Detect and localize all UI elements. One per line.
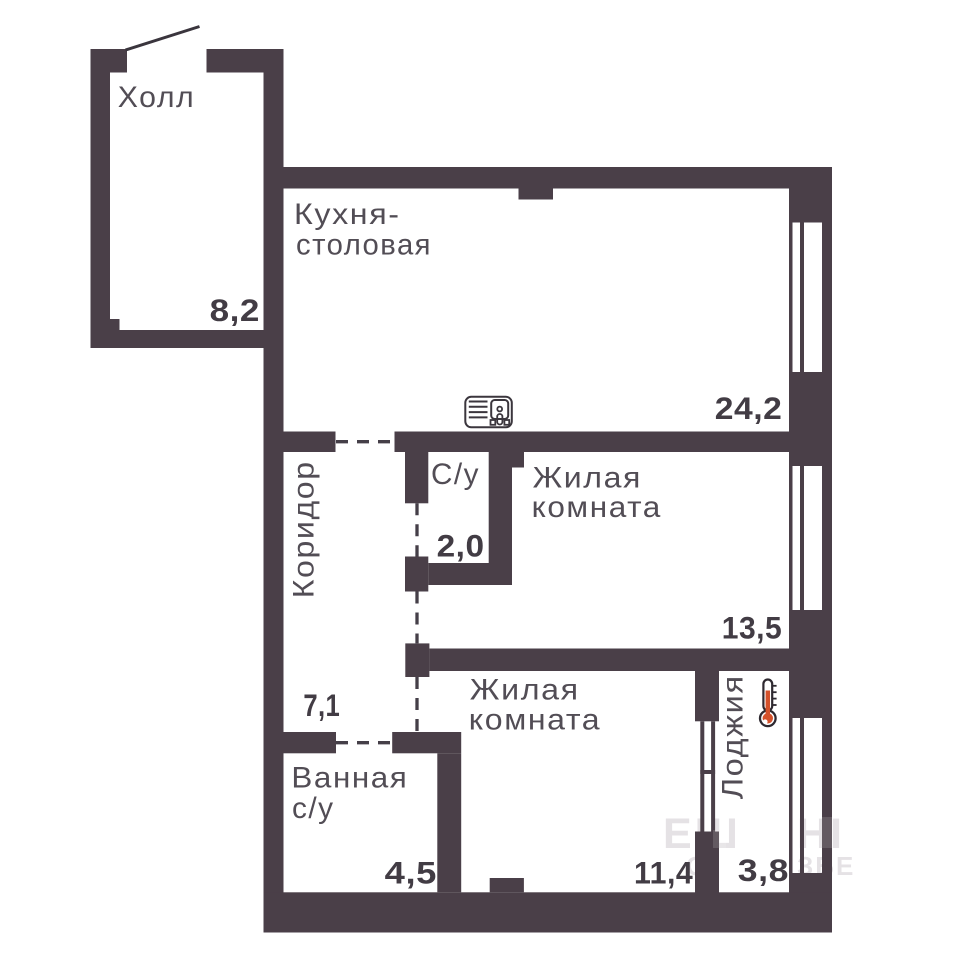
svg-text:3,8: 3,8 — [738, 852, 789, 888]
svg-text:с/у: с/у — [292, 792, 335, 825]
svg-text:комната: комната — [532, 491, 662, 524]
svg-text:2,0: 2,0 — [437, 527, 485, 563]
svg-text:8,2: 8,2 — [210, 292, 260, 328]
svg-text:Кухня-: Кухня- — [294, 198, 401, 231]
svg-text:Холл: Холл — [118, 81, 195, 114]
svg-text:Лоджия: Лоджия — [716, 674, 749, 799]
svg-text:Ванная: Ванная — [291, 761, 408, 794]
svg-text:24,2: 24,2 — [715, 390, 783, 426]
svg-text:столовая: столовая — [296, 229, 432, 262]
svg-text:4,5: 4,5 — [385, 855, 437, 891]
svg-text:7,1: 7,1 — [303, 687, 340, 723]
svg-text:Жилая: Жилая — [533, 462, 642, 495]
svg-text:11,4: 11,4 — [634, 855, 693, 891]
svg-text:Коридор: Коридор — [288, 460, 321, 598]
svg-text:13,5: 13,5 — [722, 609, 782, 645]
svg-text:С/у: С/у — [431, 458, 480, 491]
svg-text:Жилая: Жилая — [470, 673, 580, 706]
svg-text:комната: комната — [469, 704, 601, 737]
